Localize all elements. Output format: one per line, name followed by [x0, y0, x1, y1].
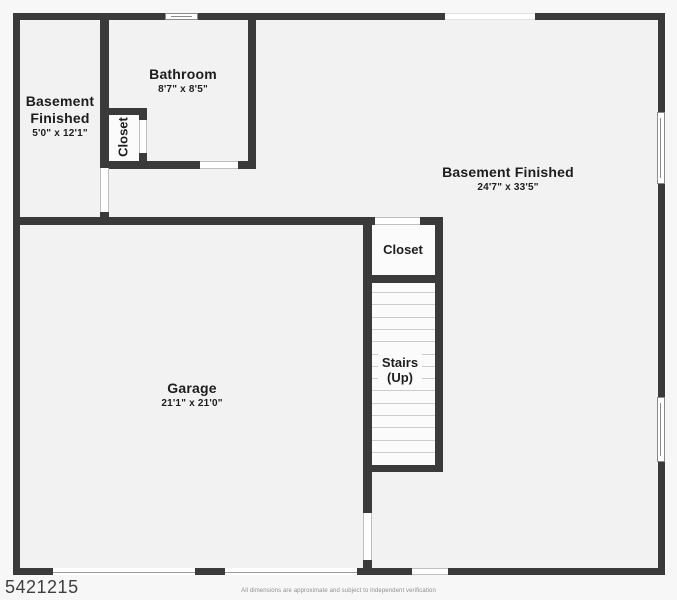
wall-segment — [448, 568, 665, 575]
wall-segment — [363, 275, 443, 283]
door-opening — [139, 120, 147, 153]
window-symbol — [657, 112, 665, 184]
room-dims-basement-left: 5'0" x 12'1" — [26, 127, 95, 140]
floor-area — [13, 13, 665, 575]
stair-tread — [372, 390, 435, 391]
door-opening — [100, 168, 109, 212]
wall-segment — [13, 568, 53, 575]
wall-segment — [139, 108, 147, 120]
stair-tread — [372, 440, 435, 441]
room-label-basement-left: Basement Finished 5'0" x 12'1" — [26, 93, 95, 140]
stair-tread — [372, 292, 435, 293]
wall-segment — [658, 184, 665, 397]
wall-segment — [435, 225, 443, 472]
wall-segment — [363, 560, 372, 568]
stair-tread — [372, 304, 435, 305]
wall-segment — [13, 13, 20, 575]
floorplan-canvas: Bathroom 8'7" x 8'5" Basement Finished 5… — [0, 0, 677, 600]
room-name-bathroom: Bathroom — [149, 66, 217, 83]
wall-segment — [420, 217, 443, 225]
room-name-basement-left-line1: Basement — [26, 93, 95, 110]
room-dims-garage: 21'1" x 21'0" — [161, 397, 222, 410]
stair-tread — [372, 329, 435, 330]
wall-segment — [195, 568, 225, 575]
garage-door-symbol — [53, 568, 195, 575]
listing-id: 5421215 — [5, 577, 79, 598]
room-label-bathroom-closet: Closet — [116, 117, 131, 157]
stair-tread — [372, 427, 435, 428]
stair-tread — [372, 341, 435, 342]
door-opening — [200, 161, 238, 169]
wall-segment — [535, 13, 665, 20]
room-name-stairs-line2: (Up) — [382, 370, 418, 385]
room-label-stairs: Stairs (Up) — [378, 354, 422, 386]
room-name-basement-left-line2: Finished — [26, 110, 95, 127]
wall-segment — [248, 20, 256, 169]
wall-opening — [445, 13, 535, 20]
window-symbol — [165, 13, 198, 20]
stair-tread — [372, 317, 435, 318]
wall-segment — [13, 217, 375, 225]
door-opening — [363, 513, 372, 560]
room-label-garage: Garage 21'1" x 21'0" — [161, 380, 222, 410]
room-label-basement-main: Basement Finished 24'7" x 33'5" — [442, 164, 574, 194]
wall-segment — [357, 568, 412, 575]
door-opening — [412, 568, 448, 575]
wall-segment — [198, 13, 445, 20]
disclaimer-text: All dimensions are approximate and subje… — [241, 588, 436, 594]
stair-tread — [372, 403, 435, 404]
wall-segment — [363, 465, 443, 472]
room-dims-basement-main: 24'7" x 33'5" — [442, 181, 574, 194]
wall-segment — [100, 161, 200, 169]
wall-segment — [658, 462, 665, 575]
room-name-garage: Garage — [161, 380, 222, 397]
room-name-stairs-line1: Stairs — [382, 355, 418, 370]
door-opening — [375, 217, 420, 225]
room-label-hall-closet: Closet — [383, 242, 423, 257]
wall-segment — [658, 13, 665, 112]
stair-tread — [372, 415, 435, 416]
stair-tread — [372, 452, 435, 453]
room-name-hall-closet: Closet — [383, 242, 423, 257]
room-name-basement-main: Basement Finished — [442, 164, 574, 181]
room-name-bathroom-closet: Closet — [116, 117, 131, 157]
window-symbol — [657, 397, 665, 462]
wall-segment — [100, 20, 109, 168]
room-dims-bathroom: 8'7" x 8'5" — [149, 83, 217, 96]
garage-door-symbol — [225, 568, 357, 575]
wall-segment — [13, 13, 165, 20]
room-label-bathroom: Bathroom 8'7" x 8'5" — [149, 66, 217, 96]
